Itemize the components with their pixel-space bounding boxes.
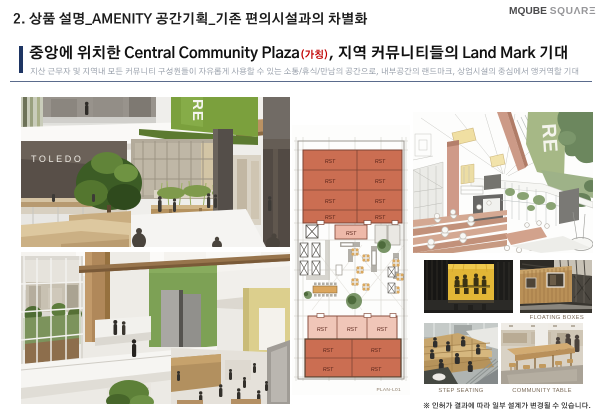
svg-text:RST: RST [371,348,382,354]
svg-text:RST: RST [325,179,336,185]
svg-text:RST: RST [323,367,334,373]
svg-text:RE: RE [537,123,561,154]
svg-text:RE: RE [189,99,206,122]
svg-text:RST: RST [317,327,328,333]
svg-text:RST: RST [347,327,358,333]
svg-text:TOLEDO: TOLEDO [31,154,83,164]
svg-text:RST: RST [371,367,382,373]
svg-text:RST: RST [375,215,386,221]
svg-text:RST: RST [375,179,386,185]
svg-text:RST: RST [325,159,336,165]
svg-text:RST: RST [377,327,388,333]
svg-text:PLAN-L01: PLAN-L01 [376,387,401,393]
svg-text:RST: RST [375,159,386,165]
svg-text:RST: RST [325,199,336,205]
svg-text:RST: RST [375,199,386,205]
svg-text:RST: RST [325,215,336,221]
svg-text:RST: RST [323,348,334,354]
svg-text:RST: RST [346,231,357,237]
